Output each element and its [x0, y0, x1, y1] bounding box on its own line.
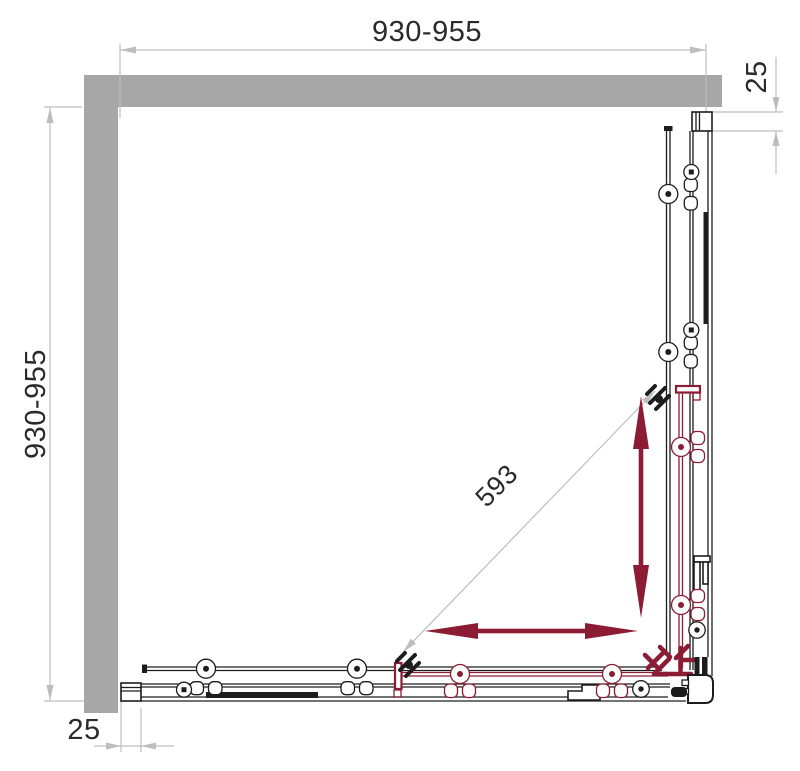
dim-arrow-up [47, 107, 54, 123]
roller-cluster [659, 323, 699, 369]
dimension-left-label: 930-955 [20, 349, 52, 459]
dimension-diagonal-label: 593 [470, 459, 524, 513]
dim-arrow-right [690, 47, 706, 54]
roller-cluster [341, 659, 373, 695]
door-roller-cluster [445, 665, 476, 698]
door-roller-cluster [672, 590, 705, 621]
enclosure-technical-drawing: 930-955 930-955 25 25 593 [0, 0, 800, 771]
dim-arrow-left [141, 743, 156, 750]
dim-arrow-left [120, 47, 136, 54]
corner-post [633, 646, 713, 703]
dimension-right-label: 25 [741, 60, 773, 93]
dim-arrow-down [773, 97, 780, 112]
right-glass-panel-edge [704, 212, 709, 324]
roller-cluster [659, 165, 699, 211]
technical-drawing-canvas: 930-955 930-955 25 25 593 [0, 0, 800, 771]
wall-left [84, 75, 118, 713]
dim-arrow-up [773, 131, 780, 146]
bottom-wall-profile [121, 683, 141, 701]
dimension-top-label: 930-955 [372, 16, 482, 48]
dimension-diagonal: 593 [403, 391, 655, 652]
door-roller-cluster [672, 432, 705, 463]
bottom-glass-panel-edge [206, 692, 318, 698]
right-door-top-bracket [676, 386, 700, 393]
walls [84, 75, 722, 713]
corner-connector-block [688, 675, 713, 703]
roller-cluster [177, 659, 223, 697]
door-roller-cluster [597, 665, 628, 698]
dim-arrow-right [106, 743, 121, 750]
slide-arrow-horizontal-icon [425, 623, 638, 639]
wall-top [84, 75, 722, 107]
dim-arrow-down [47, 685, 54, 701]
right-panel-bracket [694, 556, 710, 562]
dimension-left: 930-955 [20, 107, 84, 701]
right-wall-profile [692, 112, 712, 131]
slide-arrow-vertical-icon [633, 396, 649, 618]
dimension-bottom-label: 25 [67, 714, 100, 746]
